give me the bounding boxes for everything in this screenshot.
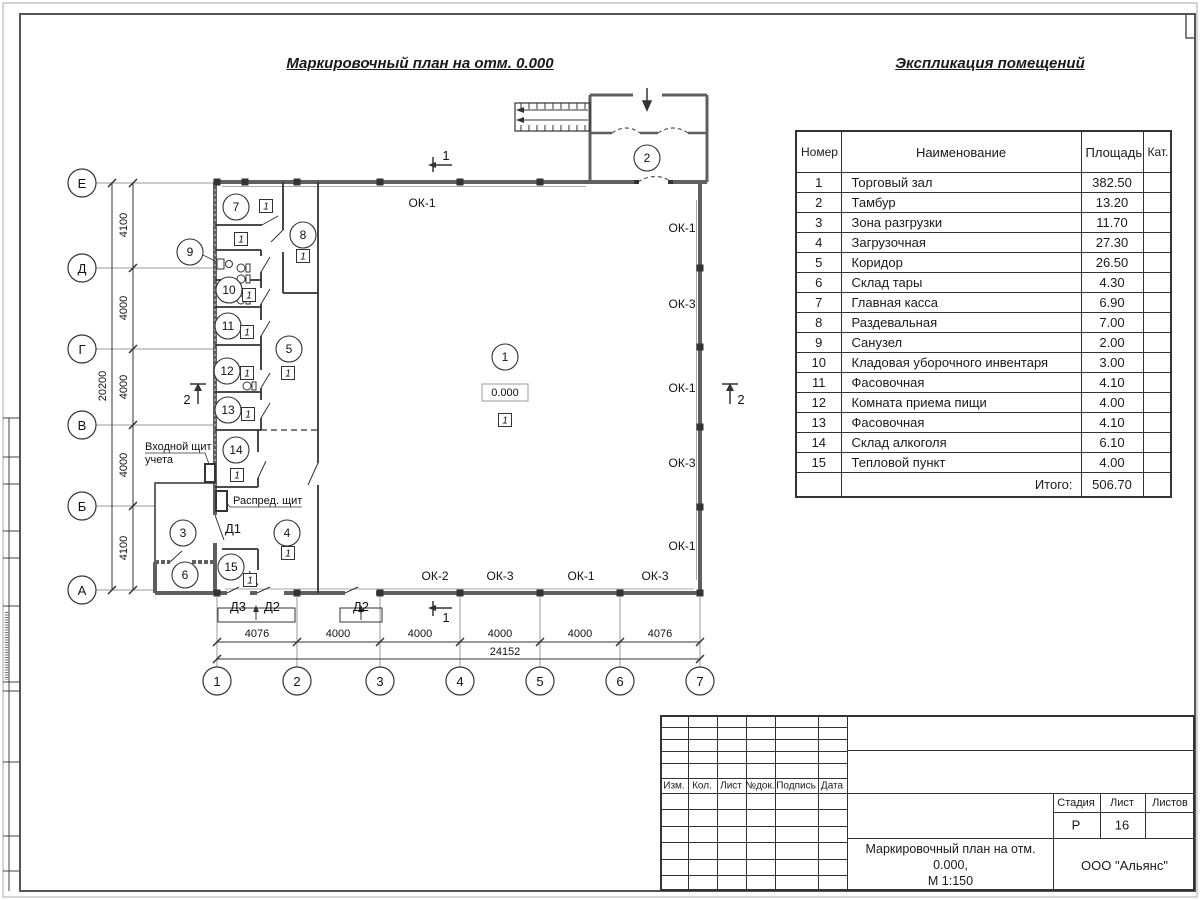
stage-label: Стадия — [1057, 797, 1095, 809]
svg-text:1: 1 — [244, 369, 250, 380]
col-header-cat: Кат. пом. — [1143, 131, 1171, 173]
sheets-label: Листов — [1152, 797, 1188, 809]
table-row: 6Склад тары4.30 — [796, 273, 1171, 293]
document-title: Маркировочный план на отм. 0.000, М 1:15… — [848, 839, 1053, 891]
svg-text:4076: 4076 — [245, 628, 269, 640]
drawing-sheet: 1 1 2 2 Е Д Г В Б А 1 2 3 4 5 6 7 4100 4… — [0, 0, 1200, 900]
entry-panel-label-2: учета — [145, 454, 174, 466]
svg-text:3: 3 — [180, 526, 187, 540]
svg-text:Б: Б — [78, 499, 87, 514]
svg-text:20200: 20200 — [97, 371, 109, 402]
table-row: 1Торговый зал382.50 — [796, 173, 1171, 193]
svg-text:2: 2 — [293, 674, 300, 689]
col-header-number: Номер помещ. — [796, 131, 841, 173]
ramp — [515, 103, 590, 131]
section-2-label-left: 2 — [183, 392, 190, 407]
svg-text:А: А — [78, 583, 87, 598]
svg-text:ОК-3: ОК-3 — [669, 297, 696, 311]
svg-text:4: 4 — [456, 674, 463, 689]
svg-text:1: 1 — [285, 549, 291, 560]
stage-value: Р — [1072, 818, 1081, 833]
section-2-label-right: 2 — [737, 392, 744, 407]
sink — [217, 259, 224, 269]
svg-text:1: 1 — [238, 235, 244, 246]
svg-text:Д2: Д2 — [353, 599, 369, 614]
table-row: 10Кладовая уборочного инвентаря3.00 — [796, 353, 1171, 373]
svg-text:4000: 4000 — [408, 628, 432, 640]
door-type-marks: 11 11 11 11 11 11 — [231, 200, 512, 587]
svg-text:10: 10 — [222, 283, 236, 297]
svg-text:ОК-3: ОК-3 — [642, 569, 669, 583]
table-row: 14Склад алкоголя6.10 — [796, 433, 1171, 453]
svg-text:В: В — [78, 418, 87, 433]
svg-text:13: 13 — [221, 403, 235, 417]
col-list: Лист — [720, 781, 742, 792]
toilet — [243, 382, 251, 390]
svg-text:1: 1 — [245, 410, 251, 421]
svg-text:15: 15 — [224, 560, 238, 574]
svg-text:2: 2 — [644, 151, 651, 165]
axis-bubbles — [68, 169, 714, 695]
svg-text:1: 1 — [502, 350, 509, 364]
svg-text:6: 6 — [182, 568, 189, 582]
svg-text:24152: 24152 — [490, 646, 521, 658]
table-row: 13Фасовочная4.10 — [796, 413, 1171, 433]
svg-text:Д1: Д1 — [225, 521, 241, 536]
svg-text:ОК-3: ОК-3 — [487, 569, 514, 583]
svg-text:9: 9 — [187, 245, 194, 259]
col-data: Дата — [821, 781, 843, 792]
svg-text:3: 3 — [376, 674, 383, 689]
svg-text:4000: 4000 — [118, 453, 130, 477]
svg-text:ОК-3: ОК-3 — [669, 456, 696, 470]
section-1-label-top: 1 — [442, 148, 449, 163]
faucet — [226, 261, 233, 268]
svg-text:1: 1 — [213, 674, 220, 689]
table-row: 15Тепловой пункт4.00 — [796, 453, 1171, 473]
table-row: 4Загрузочная27.30 — [796, 233, 1171, 253]
svg-text:5: 5 — [286, 342, 293, 356]
toilet — [237, 264, 245, 272]
col-header-name: Наименование — [841, 131, 1081, 173]
svg-text:1: 1 — [244, 328, 250, 339]
svg-text:0.000: 0.000 — [491, 387, 519, 399]
frame-left-strip — [3, 418, 20, 891]
table-row: 8Раздевальная7.00 — [796, 313, 1171, 333]
title-block: Изм. Кол. Лист №док. Подпись Дата Стадия… — [660, 715, 1195, 891]
table-row: 5Коридор26.50 — [796, 253, 1171, 273]
svg-text:11: 11 — [222, 319, 235, 333]
section-marks — [190, 157, 738, 616]
total-area: 506.70 — [1081, 473, 1143, 498]
svg-text:4: 4 — [284, 526, 291, 540]
svg-text:6: 6 — [616, 674, 623, 689]
col-kol: Кол. — [692, 781, 712, 792]
entrance-arrow — [643, 88, 651, 110]
section-1-label-bottom: 1 — [442, 610, 449, 625]
svg-text:ОК-1: ОК-1 — [669, 381, 696, 395]
svg-text:8: 8 — [300, 228, 307, 242]
svg-text:ОК-1: ОК-1 — [409, 196, 436, 210]
svg-text:ОК-1: ОК-1 — [669, 221, 696, 235]
entry-panel-label-1: Входной щит — [145, 441, 212, 453]
explication-table: Номер помещ. Наименование Площадь Кат. п… — [795, 130, 1172, 498]
svg-text:ОК-1: ОК-1 — [669, 539, 696, 553]
svg-text:Г: Г — [78, 342, 85, 357]
table-header-row: Номер помещ. Наименование Площадь Кат. п… — [796, 131, 1171, 173]
col-izm: Изм. — [663, 781, 684, 792]
svg-text:4000: 4000 — [488, 628, 512, 640]
svg-text:4000: 4000 — [326, 628, 350, 640]
svg-text:1: 1 — [300, 252, 306, 263]
svg-text:1: 1 — [285, 369, 291, 380]
svg-text:Д3: Д3 — [230, 599, 246, 614]
svg-text:7: 7 — [233, 200, 240, 214]
svg-text:1: 1 — [502, 416, 508, 427]
svg-text:Д: Д — [78, 261, 87, 276]
svg-text:4000: 4000 — [568, 628, 592, 640]
table-row: 12Комната приема пищи4.00 — [796, 393, 1171, 413]
svg-text:1: 1 — [246, 291, 252, 302]
svg-text:Е: Е — [78, 176, 87, 191]
level-mark: 0.000 — [482, 384, 528, 401]
table-row: 3Зона разгрузки11.70 — [796, 213, 1171, 233]
table-total-row: Итого: 506.70 — [796, 473, 1171, 498]
table-row: 7Главная касса6.90 — [796, 293, 1171, 313]
svg-text:4000: 4000 — [118, 375, 130, 399]
total-label: Итого: — [841, 473, 1081, 498]
distribution-panel — [216, 491, 227, 511]
plan-title: Маркировочный план на отм. 0.000 — [250, 55, 590, 72]
svg-text:1: 1 — [247, 576, 253, 587]
section-labels: 1 1 2 2 — [183, 148, 744, 625]
frame-corner-box — [1186, 14, 1195, 38]
svg-text:5: 5 — [536, 674, 543, 689]
svg-text:4100: 4100 — [118, 536, 130, 560]
svg-text:4100: 4100 — [118, 213, 130, 237]
col-header-area: Площадь — [1081, 131, 1143, 173]
col-podpis: Подпись — [776, 781, 816, 792]
svg-text:4000: 4000 — [118, 296, 130, 320]
col-ndok: №док. — [745, 781, 774, 792]
table-row: 2Тамбур13.20 — [796, 193, 1171, 213]
company-name: ООО "Альянс" — [1054, 839, 1195, 891]
window-labels: ОК-1 ОК-1 ОК-3 ОК-1 ОК-3 ОК-1 ОК-2 ОК-3 … — [409, 196, 696, 583]
axis-labels: Е Д Г В Б А 1 2 3 4 5 6 7 — [78, 176, 704, 689]
explication-title: Экспликация помещений — [860, 55, 1120, 72]
svg-text:14: 14 — [229, 443, 243, 457]
svg-text:ОК-1: ОК-1 — [568, 569, 595, 583]
sheet-label: Лист — [1110, 797, 1134, 809]
table-row: 11Фасовочная4.10 — [796, 373, 1171, 393]
svg-text:1: 1 — [263, 202, 269, 213]
svg-text:7: 7 — [696, 674, 703, 689]
svg-text:Д2: Д2 — [264, 599, 280, 614]
entry-meter-panel — [205, 464, 215, 482]
svg-text:12: 12 — [220, 364, 234, 378]
svg-text:4076: 4076 — [648, 628, 672, 640]
distribution-panel-label: Распред. щит — [233, 495, 302, 507]
sheet-value: 16 — [1115, 818, 1129, 833]
svg-text:ОК-2: ОК-2 — [422, 569, 449, 583]
svg-text:1: 1 — [234, 471, 240, 482]
table-row: 9Санузел2.00 — [796, 333, 1171, 353]
